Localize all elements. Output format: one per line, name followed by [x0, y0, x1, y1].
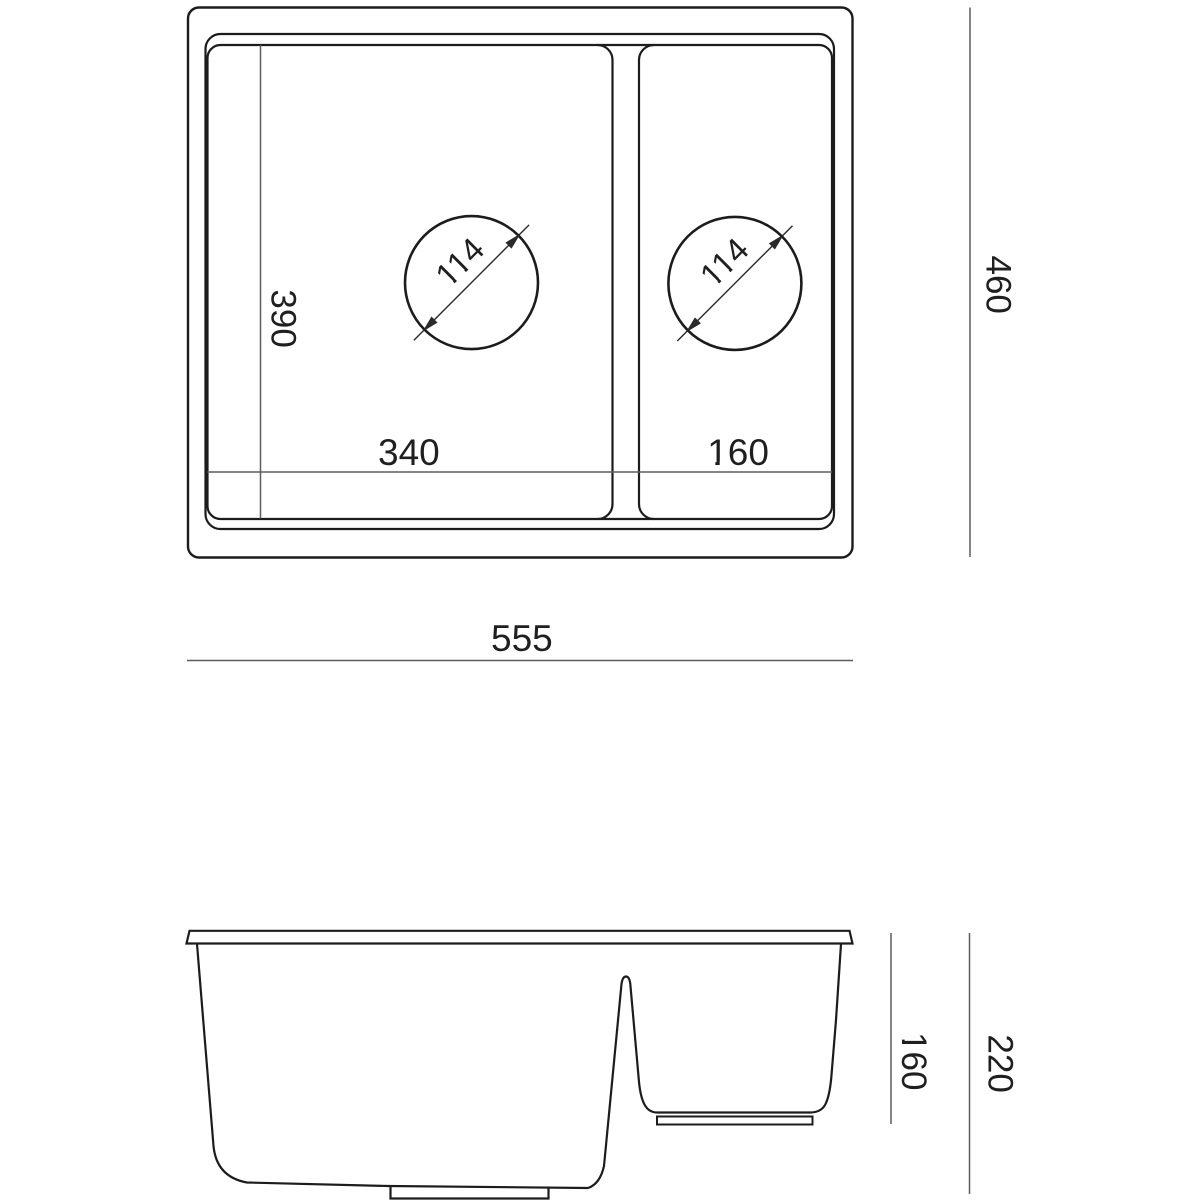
svg-text:160: 160 [707, 432, 769, 473]
svg-text:460: 460 [978, 255, 1017, 313]
svg-text:390: 390 [264, 289, 303, 347]
svg-text:220: 220 [981, 1034, 1020, 1092]
svg-text:555: 555 [491, 618, 553, 659]
svg-text:160: 160 [894, 1032, 933, 1090]
svg-text:340: 340 [378, 432, 440, 473]
